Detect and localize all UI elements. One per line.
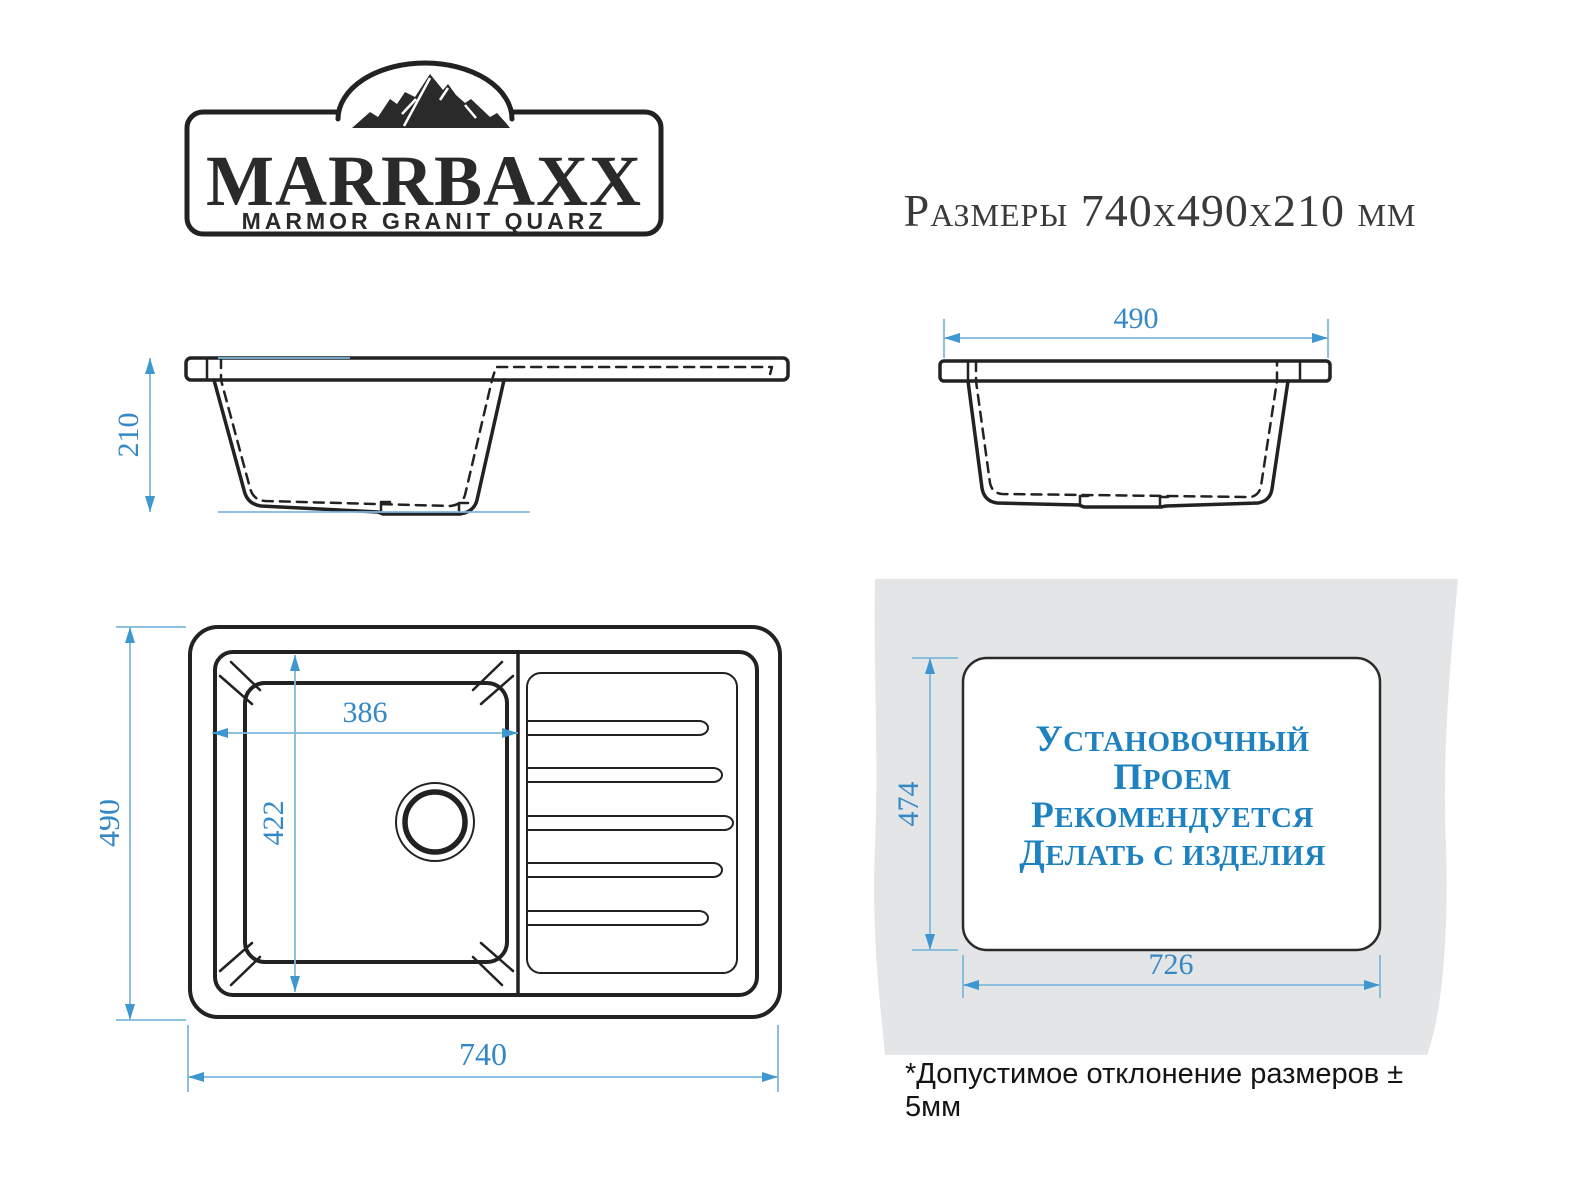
cutout-note-line: УСТАНОВОЧНЫЙ [965,722,1380,760]
cutout-note-line: ПРОЕМ [965,760,1380,798]
drain-icon [396,783,474,861]
dimension-490-side: 490 [944,302,1328,358]
page-title: Размеры 740x490x210 мм [880,184,1440,237]
arrow-up-icon [145,358,155,374]
sink-dimension-drawing: MARRBAXX MARMOR GRANIT QUARZ Размеры 740… [0,0,1569,1200]
top-view: 386 422 490 740 [100,600,820,1100]
dimension-490-top-label: 490 [100,799,126,847]
side-elevation-view: 490 [900,295,1370,545]
front-elevation-view: 210 [100,340,820,555]
arrow-left-icon [944,333,960,343]
arrow-right-icon [1312,333,1328,343]
dimension-726-label: 726 [1149,948,1194,981]
dimension-210-label: 210 [112,413,145,458]
arrow-down-icon [290,976,300,992]
arrow-up-icon [125,627,135,643]
brand-tagline: MARMOR GRANIT QUARZ [242,208,607,234]
dimension-422: 422 [257,655,300,992]
dimension-386-label: 386 [343,696,388,729]
dimension-490-top: 490 [100,627,186,1020]
side-rim-edge-lines [968,362,1300,380]
drainboard-grooves [527,721,733,925]
dimension-490-extension-lines [116,627,186,1020]
cutout-note: УСТАНОВОЧНЫЙ ПРОЕМ РЕКОМЕНДУЕТСЯ ДЕЛАТЬ … [965,722,1380,874]
side-rim-slab [940,361,1330,381]
top-rim-inner-edge [215,652,757,995]
arrow-right-icon [762,1072,778,1082]
cutout-note-line: РЕКОМЕНДУЕТСЯ [965,798,1380,836]
tolerance-footnote: *Допустимое отклонение размеров ± 5мм [905,1058,1445,1124]
front-bowl-outline [214,380,504,514]
dimension-490-side-label: 490 [1114,302,1159,335]
side-bowl-outline [968,381,1288,507]
dimension-422-label: 422 [257,801,290,846]
dimension-740: 740 [188,1025,778,1092]
arrow-down-icon [145,496,155,512]
cutout-note-line: ДЕЛАТЬ С ИЗДЕЛИЯ [965,836,1380,874]
arrow-down-icon [125,1004,135,1020]
brand-logo: MARRBAXX MARMOR GRANIT QUARZ [180,58,670,248]
arrow-left-icon [188,1072,204,1082]
dimension-386: 386 [212,696,518,738]
arrow-right-icon [502,728,518,738]
arrow-up-icon [290,655,300,671]
dimension-740-label: 740 [459,1036,507,1072]
drainboard-edge [527,673,737,973]
dimension-474-label: 474 [892,782,925,827]
front-rim-slab [186,358,788,380]
